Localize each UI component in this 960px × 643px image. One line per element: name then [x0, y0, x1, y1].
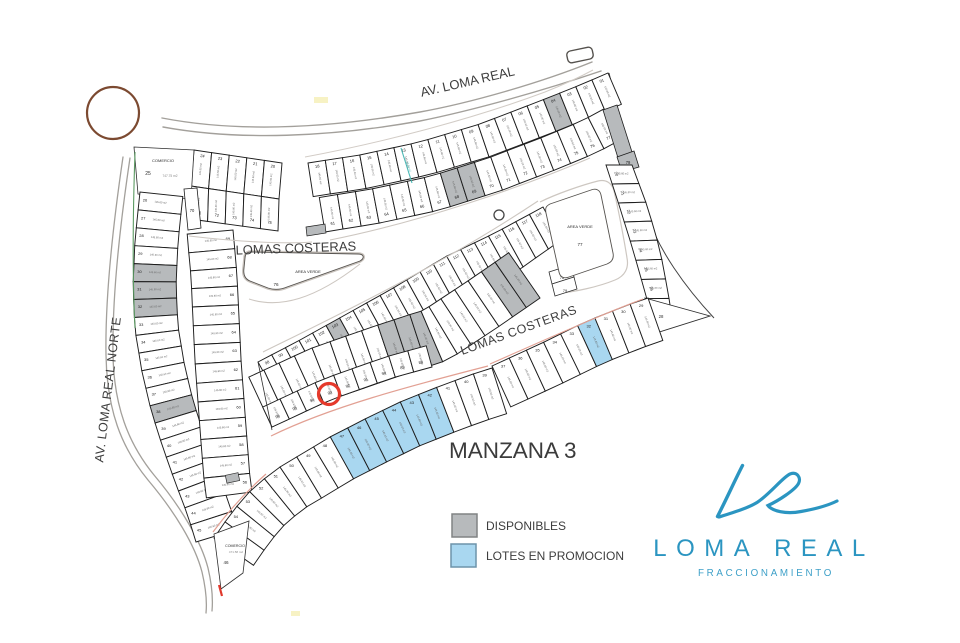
svg-text:35: 35	[144, 357, 149, 362]
svg-text:42: 42	[427, 393, 432, 398]
svg-text:50: 50	[289, 463, 294, 468]
svg-text:43: 43	[409, 400, 414, 405]
svg-text:63: 63	[232, 348, 237, 353]
svg-text:48: 48	[323, 443, 328, 448]
svg-text:52: 52	[259, 486, 264, 491]
svg-text:70: 70	[190, 208, 195, 213]
svg-text:FRACCIONAMIENTO: FRACCIONAMIENTO	[698, 568, 834, 579]
svg-text:33: 33	[569, 331, 574, 336]
svg-text:145.60 m2: 145.60 m2	[214, 199, 218, 212]
svg-text:76: 76	[273, 282, 279, 287]
svg-text:27: 27	[141, 215, 146, 220]
svg-text:LOTES EN PROMOCION: LOTES EN PROMOCION	[486, 549, 624, 563]
svg-text:COMERCIO: COMERCIO	[152, 158, 174, 163]
svg-text:145.60 m2: 145.60 m2	[210, 331, 223, 336]
svg-text:54: 54	[234, 514, 239, 519]
svg-text:35: 35	[535, 348, 540, 353]
svg-text:51: 51	[274, 474, 279, 479]
svg-text:68: 68	[227, 255, 232, 260]
svg-text:LOMA REAL: LOMA REAL	[653, 535, 875, 562]
svg-text:29: 29	[639, 303, 644, 308]
svg-text:45: 45	[197, 528, 202, 533]
svg-text:39: 39	[161, 426, 166, 431]
svg-text:37: 37	[152, 392, 157, 397]
svg-text:56: 56	[243, 479, 248, 484]
svg-text:145.60 m2: 145.60 m2	[231, 202, 235, 215]
svg-text:79: 79	[563, 288, 568, 293]
svg-text:145.60 m2: 145.60 m2	[209, 293, 222, 298]
svg-text:62: 62	[234, 367, 239, 372]
svg-text:64: 64	[231, 329, 236, 334]
svg-text:77: 77	[577, 242, 583, 247]
svg-text:49: 49	[306, 453, 311, 458]
svg-text:MANZANA 3: MANZANA 3	[449, 438, 577, 463]
svg-text:44: 44	[392, 408, 397, 413]
svg-text:COMERCIO: COMERCIO	[225, 544, 245, 548]
svg-text:41: 41	[173, 460, 178, 465]
svg-text:145.60 m2: 145.60 m2	[645, 266, 658, 270]
svg-text:145.60 m2: 145.60 m2	[629, 209, 642, 213]
svg-text:145.60 m2: 145.60 m2	[266, 207, 270, 220]
svg-text:44: 44	[191, 510, 196, 515]
svg-text:DISPONIBLES: DISPONIBLES	[486, 519, 566, 533]
svg-text:145.60 m2: 145.60 m2	[640, 247, 653, 251]
svg-text:145.60 m2: 145.60 m2	[150, 252, 163, 257]
svg-text:59: 59	[238, 423, 243, 428]
svg-text:30: 30	[621, 309, 626, 314]
svg-text:45: 45	[374, 416, 379, 421]
svg-text:40: 40	[167, 443, 172, 448]
svg-text:46: 46	[223, 560, 229, 565]
svg-text:67: 67	[229, 273, 234, 278]
svg-text:AREA VERDE: AREA VERDE	[295, 269, 321, 274]
svg-text:145.60 m2: 145.60 m2	[149, 287, 162, 291]
svg-text:47: 47	[340, 434, 345, 439]
svg-text:79: 79	[626, 160, 631, 165]
svg-text:145.60 m2: 145.60 m2	[149, 270, 162, 274]
svg-text:145.60 m2: 145.60 m2	[616, 171, 629, 175]
svg-text:41: 41	[446, 386, 451, 391]
svg-text:61: 61	[235, 386, 240, 391]
svg-text:29: 29	[138, 251, 143, 256]
svg-text:65: 65	[231, 311, 236, 316]
svg-text:40: 40	[464, 379, 469, 384]
svg-text:32: 32	[586, 323, 591, 328]
svg-text:53: 53	[246, 499, 251, 504]
svg-text:25: 25	[145, 171, 151, 177]
svg-text:145.60 m2: 145.60 m2	[210, 312, 223, 317]
svg-text:34: 34	[141, 339, 146, 344]
svg-text:145.60 m2: 145.60 m2	[650, 286, 663, 290]
svg-text:145.60 m2: 145.60 m2	[623, 190, 636, 194]
svg-text:57: 57	[241, 461, 246, 466]
svg-text:46: 46	[357, 425, 362, 430]
svg-text:28: 28	[139, 233, 144, 238]
svg-text:42: 42	[179, 477, 184, 482]
svg-text:471.58 m2: 471.58 m2	[229, 550, 244, 554]
svg-text:34: 34	[552, 340, 557, 345]
svg-text:30: 30	[137, 269, 142, 274]
svg-text:33: 33	[139, 322, 144, 327]
svg-text:37: 37	[501, 364, 506, 369]
svg-text:32: 32	[138, 304, 143, 309]
svg-text:60: 60	[236, 404, 241, 409]
svg-text:31: 31	[137, 287, 142, 292]
svg-text:145.60 m2: 145.60 m2	[249, 204, 253, 217]
svg-text:31: 31	[604, 316, 609, 321]
svg-text:36: 36	[147, 374, 152, 379]
svg-text:26: 26	[143, 198, 148, 203]
svg-text:38: 38	[156, 409, 161, 414]
svg-text:43: 43	[185, 493, 190, 498]
svg-text:66: 66	[230, 292, 235, 297]
svg-text:39: 39	[482, 373, 487, 378]
svg-text:145.60 m2: 145.60 m2	[149, 304, 162, 309]
svg-text:58: 58	[239, 442, 244, 447]
svg-text:36: 36	[518, 356, 523, 361]
svg-text:747.75 m2: 747.75 m2	[162, 174, 177, 178]
svg-text:28: 28	[659, 314, 664, 319]
svg-text:145.60 m2: 145.60 m2	[211, 350, 224, 355]
svg-text:145.60 m2: 145.60 m2	[635, 228, 648, 232]
svg-text:AREA VERDE: AREA VERDE	[567, 224, 593, 229]
